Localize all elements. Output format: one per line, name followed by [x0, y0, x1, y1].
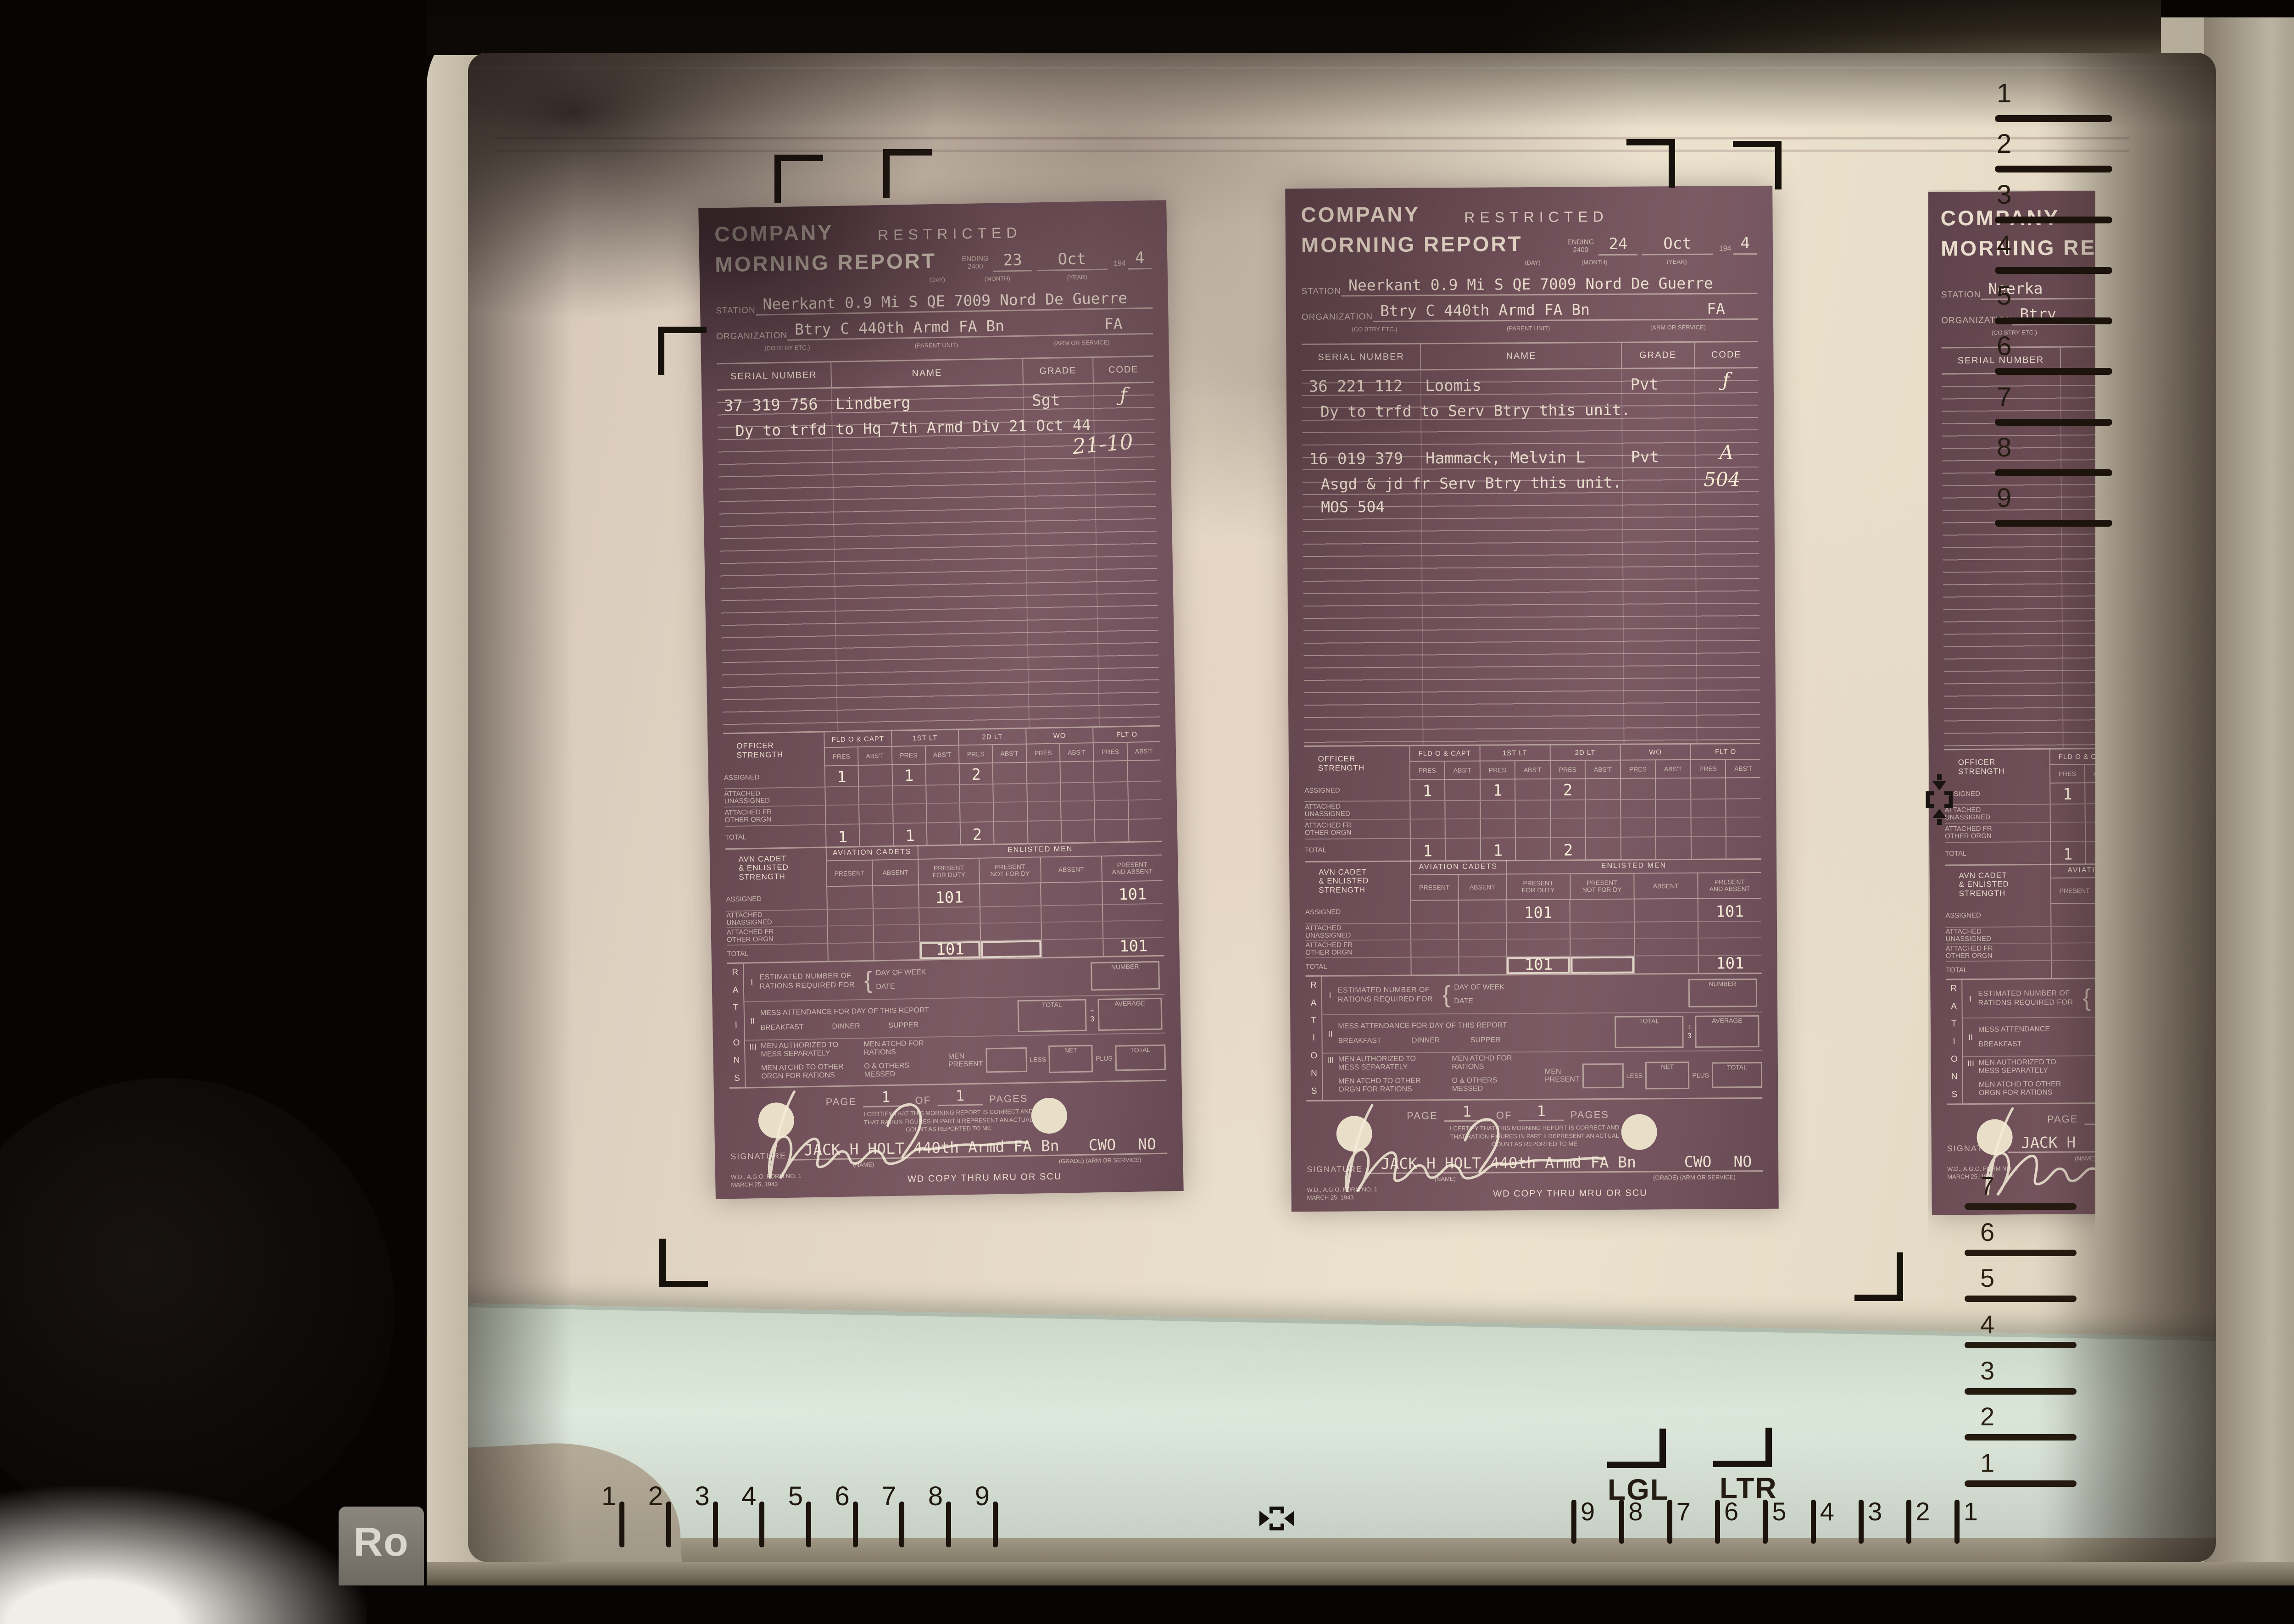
registration-bracket-icon — [659, 1239, 708, 1287]
ending-label: ENDING 2400 — [1567, 239, 1594, 256]
pres-abst-header: ABS'T — [857, 747, 891, 765]
officer-value: 2 — [1550, 779, 1585, 799]
pres-abst-header: ABS'T — [1585, 761, 1620, 778]
average-label: AVERAGE — [1712, 1017, 1743, 1024]
average-box: AVERAGE — [1097, 998, 1162, 1031]
officer-value: 1 — [825, 824, 859, 846]
rations-letter: T — [1311, 1016, 1316, 1026]
right-ruler-top: 123456789 — [1997, 80, 2041, 512]
foreground-silhouette — [0, 1078, 395, 1537]
entry-grade: Pvt — [1621, 375, 1694, 394]
entry-note-row: Dy to trfd to Serv Btry this unit. — [1302, 393, 1758, 421]
company-morning-report-form: COMPANY RESTRICTED MORNING REPORT ENDING… — [1285, 186, 1779, 1212]
pres-abst-header: ABS'T — [1514, 761, 1550, 779]
year-prefix: 194 — [1719, 245, 1732, 255]
net-box: NET — [1645, 1062, 1689, 1090]
restricted-stamp: RESTRICTED — [878, 224, 1022, 244]
officer-value: 1 — [1480, 838, 1515, 860]
scale-number: 9 — [1581, 1499, 1595, 1524]
ruler-number: 4 — [1980, 1312, 2021, 1337]
entry-code-handwritten: A — [1694, 441, 1758, 466]
org-sublabel: (CO BTRY ETC.) — [1352, 325, 1397, 333]
roman-numeral: II — [1963, 1032, 1978, 1042]
signature-grade: CWO — [1077, 1135, 1127, 1156]
entry-code-handwritten — [1094, 456, 1156, 481]
rations-part-1: I ESTIMATED NUMBER OF RATIONS REQUIRED F… — [744, 957, 1164, 1002]
row-label: TOTAL — [1946, 961, 2051, 979]
entry-code-handwritten: ƒ — [1694, 368, 1758, 394]
station-label: STATION — [1941, 290, 1981, 300]
rations-letter: A — [1951, 1001, 1957, 1012]
machine-top-shadow — [427, 0, 2161, 55]
breakfast-label: BREAKFAST — [760, 1023, 804, 1032]
center-film-horizontal-icon — [1258, 1506, 1295, 1531]
ruler-number: 2 — [1980, 1404, 2021, 1429]
doc-header: COMPANY RESTRICTED MORNING REPORT ENDING… — [714, 214, 1152, 291]
ending-day-value: 24 — [1598, 235, 1637, 256]
pres-abst-header: PRES — [958, 745, 992, 763]
officer-group-header: 1ST LT — [891, 730, 958, 746]
breakfast-label: BREAKFAST — [1978, 1040, 2021, 1049]
ruler-number: 8 — [1997, 434, 2041, 461]
col-header: ABSENT — [1633, 873, 1697, 899]
officer-value: 2 — [960, 822, 994, 844]
officer-assigned-row: ASSIGNED 1 1 2 — [1304, 778, 1760, 802]
pres-abst-header: PRES — [891, 746, 925, 764]
rations-part-2: II MESS ATTENDANCE FOR DAY OF THIS REPOR… — [744, 995, 1165, 1041]
rations-letter: O — [733, 1038, 740, 1048]
photo-of-microfilm-reader-screen: { "machine": { "brand_label": "Ro" }, "i… — [0, 0, 2294, 1585]
station-label: STATION — [716, 306, 756, 317]
roman-numeral: I — [1322, 990, 1338, 1000]
entry-note: Dy to trfd to Serv Btry this unit. — [1302, 401, 1630, 421]
ending-word: ENDING — [962, 255, 989, 263]
col-header: ABSENT — [1458, 874, 1506, 900]
right-ruler-bottom: 7654321 — [1980, 1173, 2021, 1476]
screen-bottom-lip — [468, 1538, 2216, 1562]
entry-serial: 16 019 379 — [1303, 450, 1417, 469]
scale-number: 4 — [741, 1483, 756, 1510]
year-sublabel: (YEAR) — [1067, 273, 1087, 281]
ltr-size-bracket-icon — [1713, 1428, 1772, 1467]
ending-month-value: Oct — [1036, 250, 1107, 272]
brace-glyph: { — [864, 967, 872, 994]
mess-separately-label: MEN AUTHORIZED TO MESS SEPARATELY — [761, 1040, 864, 1064]
morning-report-right: COMPANY RESTRICTED MORNING REPORT ENDING… — [1285, 186, 1779, 1212]
roster-column-headers: SERIAL NUMBER NAME GRADE CODE — [1302, 341, 1758, 371]
number-box: NUMBER — [1688, 979, 1757, 1007]
atchd-for-rations-label: MEN ATCHD FOR RATIONS — [863, 1039, 948, 1062]
total-box-2: TOTAL — [1115, 1045, 1166, 1071]
row-label: ASSIGNED — [1944, 784, 2049, 805]
organization-label: ORGANIZATION — [716, 331, 788, 342]
mess-attendance-label: MESS ATTENDANCE FOR DAY OF THIS REPORT — [1338, 1021, 1615, 1031]
row-label: TOTAL — [725, 825, 826, 848]
enlisted-assigned-row: ASSIGNED 101 101 — [1305, 899, 1761, 924]
pres-abst-header: ABS'T — [1444, 762, 1480, 779]
roster-entries-area: 36 221 112 Loomis Pvt ƒ Dy to trfd to Se… — [1302, 368, 1760, 745]
month-sublabel: (MONTH) — [984, 275, 1010, 282]
registration-bracket-icon — [658, 327, 707, 375]
year-prefix: 194 — [1114, 260, 1126, 270]
officer-group-header-row: FLD O & CAPT1ST LT2D LTWOFLT O — [1409, 744, 1760, 762]
ruler-number: 9 — [1997, 485, 2041, 512]
ruler-number: 1 — [1980, 1450, 2021, 1476]
pres-abst-header: ABS'T — [1059, 743, 1093, 761]
entry-serial: 37 319 756 — [717, 395, 827, 415]
entry-extra-row: MOS 504 — [1303, 490, 1759, 516]
scale-number: 4 — [1820, 1499, 1834, 1524]
year-sublabel: (YEAR) — [1667, 258, 1687, 265]
legal-size-label: LGL — [1608, 1473, 1669, 1507]
pres-abst-header: ABS'T — [1725, 760, 1760, 777]
organization-label: ORGANIZATION — [1302, 312, 1373, 323]
row-label: ATTACHED FR OTHER ORGN — [724, 806, 825, 826]
form-title-company: COMPANY — [1301, 201, 1420, 227]
col-header: PRESENT FOR DUTY — [1506, 874, 1570, 900]
ending-year-value: 4 — [1127, 249, 1152, 270]
row-label: ATTACHED FR OTHER ORGN — [727, 926, 828, 945]
dinner-label: DINNER — [832, 1022, 860, 1031]
ruler-number: 4 — [1997, 232, 2041, 259]
dinner-label: DINNER — [1412, 1036, 1440, 1045]
code-header: CODE — [1092, 357, 1154, 383]
scale-number: 6 — [835, 1483, 850, 1510]
brand-badge: Ro — [339, 1507, 424, 1585]
entry-grade: Sgt — [1023, 390, 1093, 410]
arm-of-service-value: FA — [1667, 300, 1758, 320]
serial-number-header: SERIAL NUMBER — [717, 362, 830, 389]
rations-letter: O — [1310, 1051, 1317, 1061]
ending-day-value: 23 — [993, 250, 1032, 272]
signature-arm: NO — [1127, 1135, 1167, 1155]
row-label: ATTACHED FR OTHER ORGN — [1945, 823, 2050, 842]
number-label: NUMBER — [1111, 963, 1139, 971]
date-label: DATE — [1454, 993, 1688, 1009]
signature-grade: CWO — [1673, 1152, 1723, 1172]
entry-extra — [720, 535, 737, 536]
roster-entry-row: 16 019 379 Hammack, Melvin L Pvt A — [1303, 441, 1759, 468]
enlisted-strength-label: AVN CADET & ENLISTED STRENGTH — [1945, 864, 2050, 905]
rations-letter: A — [732, 985, 738, 995]
rations-vertical-label: RATIONS — [1306, 977, 1323, 1100]
letter-size-label: LTR — [1720, 1471, 1777, 1505]
organization-value: Btry C 440th Armd FA Bn — [1373, 300, 1667, 322]
row-label: ASSIGNED — [1304, 780, 1409, 801]
total-box: TOTAL — [1018, 999, 1087, 1033]
handwritten-signature — [751, 1064, 1075, 1207]
number-box: NUMBER — [1091, 961, 1160, 991]
month-sublabel: (MONTH) — [1581, 258, 1607, 265]
pres-abst-header: PRES — [1025, 744, 1059, 762]
officer-group-header: WO — [1620, 745, 1690, 760]
scale-number: 5 — [788, 1483, 803, 1510]
row-label: TOTAL — [1305, 958, 1410, 975]
name-header: NAME — [830, 359, 1023, 387]
row-label: ATTACHED UNASSIGNED — [1305, 924, 1410, 940]
entry-grade: Pvt — [1621, 448, 1694, 467]
divide-by-three: ÷ 3 — [1687, 1023, 1691, 1040]
pres-abst-header: ABS'T — [1126, 742, 1160, 760]
officer-attached-fr-row: ATTACHED FR OTHER ORGN — [1305, 818, 1761, 840]
row-label: ATTACHED FR OTHER ORGN — [1946, 944, 2051, 961]
rations-vertical-label: RATIONS — [1946, 980, 1963, 1103]
ruler-number: 7 — [1997, 384, 2041, 411]
bottom-scale-left: 123456789 — [601, 1483, 990, 1510]
parent-unit-sublabel: (PARENT UNIT) — [1507, 324, 1550, 332]
rations-required-label: RATIONS REQUIRED FOR — [1338, 995, 1439, 1004]
rations-letter: I — [1953, 1037, 1955, 1047]
roman-numeral: II — [1322, 1029, 1338, 1039]
average-label: AVERAGE — [1114, 999, 1145, 1007]
officer-group-header: FLT O — [1093, 727, 1160, 743]
scale-number: 1 — [601, 1483, 616, 1510]
rations-part-2: II MESS ATTENDANCE FOR DAY OF THIS REPOR… — [1322, 1012, 1762, 1054]
rations-required-label: RATIONS REQUIRED FOR — [760, 980, 861, 991]
less-label: LESS — [1626, 1072, 1643, 1079]
name-header: NAME — [1420, 343, 1621, 369]
roman-numeral: I — [744, 977, 760, 987]
officer-value: 1 — [891, 765, 925, 785]
officer-group-header: WO — [1025, 728, 1093, 744]
entry-name: Hammack, Melvin L — [1416, 448, 1622, 468]
enlisted-strength-table: AVN CADET & ENLISTED STRENGTH AVIATION C… — [725, 841, 1164, 964]
grade-header: GRADE — [1022, 358, 1092, 384]
row-label: ASSIGNED — [726, 887, 827, 911]
rations-letter: A — [1311, 998, 1317, 1008]
rations-letter: R — [1950, 984, 1957, 994]
officer-group-header: FLT O — [1690, 744, 1760, 759]
scale-number: 3 — [695, 1483, 709, 1510]
arm-of-service-value: FA — [1066, 314, 1153, 336]
entry-note: Asgd & jd fr Serv Btry this unit. — [1303, 473, 1622, 493]
pres-abst-header: PRES — [1480, 761, 1515, 779]
row-label: ASSIGNED — [724, 766, 825, 788]
officer-strength-label: OFFICER STRENGTH — [723, 732, 824, 768]
ruler-number: 6 — [1980, 1219, 2021, 1245]
doc-header: COMPANY RESTRICTED MORNING REPORT ENDING… — [1301, 200, 1757, 271]
form-title-morning-report: MORNING REPORT — [1301, 231, 1523, 257]
day-of-week-label: DAY OF WEEK — [1454, 979, 1688, 995]
enlisted-men-header: ENLISTED MEN — [1506, 858, 1761, 873]
day-sublabel: (DAY) — [929, 276, 945, 283]
pres-abst-header: PRES — [1690, 760, 1726, 777]
entry-code-handwritten: ƒ — [1093, 383, 1154, 409]
ending-hour: 2400 — [968, 263, 983, 271]
officer-value: 1 — [1480, 779, 1515, 800]
enlisted-value: 101 — [919, 941, 980, 959]
registration-bracket-icon — [1854, 1252, 1903, 1301]
roman-numeral: I — [1962, 994, 1978, 1003]
scale-number: 2 — [1915, 1499, 1930, 1524]
brace-glyph: { — [1442, 981, 1451, 1008]
row-label: ATTACHED UNASSIGNED — [1945, 805, 2050, 823]
officer-value: 2 — [1550, 838, 1586, 859]
rations-letter: S — [734, 1073, 740, 1084]
row-label: TOTAL — [1945, 842, 2050, 865]
officer-attached-row: ATTACHED UNASSIGNED — [1304, 799, 1760, 820]
rations-letter: O — [1951, 1054, 1958, 1064]
registration-bracket-icon — [883, 149, 932, 198]
breakfast-label: BREAKFAST — [1338, 1037, 1381, 1046]
rations-part-1: I ESTIMATED NUMBER OF RATIONS REQUIRED F… — [1322, 974, 1762, 1015]
code-header: CODE — [1694, 342, 1758, 367]
enlisted-strength-label: AVN CADET & ENLISTED STRENGTH — [1305, 861, 1410, 901]
entry-extra-row — [1302, 418, 1758, 444]
row-label: ASSIGNED — [1945, 904, 2050, 927]
scale-number: 2 — [648, 1483, 663, 1510]
entry-note-code: 504 — [1704, 468, 1740, 490]
enlisted-value: 101 — [1102, 938, 1164, 956]
pres-abst-header: PRES — [1093, 743, 1127, 761]
col-header: PRESENT AND ABSENT — [1697, 873, 1761, 898]
pres-abst-header: ABS'T — [925, 745, 959, 763]
ending-label: ENDING 2400 — [962, 255, 989, 273]
estimated-label: ESTIMATED NUMBER OF — [1338, 985, 1439, 995]
row-label: ATTACHED FR OTHER ORGN — [1305, 940, 1410, 957]
scale-number: 8 — [928, 1483, 943, 1510]
enlisted-subheader-row: PRESENT ABSENT PRESENT FOR DUTY PRESENT … — [1410, 873, 1761, 901]
plus-label: PLUS — [1096, 1055, 1113, 1062]
rations-letter: N — [734, 1056, 740, 1066]
plus-label: PLUS — [1692, 1072, 1709, 1079]
doc-footer: PAGE 1 OF 1 PAGES I CERTIFY THAT THIS MO… — [729, 1081, 1168, 1185]
ending-year-value: 4 — [1733, 234, 1757, 255]
ending-month-value: Oct — [1642, 234, 1713, 256]
supper-label: SUPPER — [888, 1021, 919, 1030]
rations-letter: N — [1311, 1068, 1317, 1079]
col-header: PRESENT — [826, 861, 872, 886]
ruler-number: 5 — [1980, 1265, 2021, 1291]
row-label: TOTAL — [1305, 839, 1410, 861]
row-label: ATTACHED UNASSIGNED — [1304, 801, 1409, 819]
scale-number: 7 — [881, 1483, 896, 1510]
officer-group-header: 2D LT — [1549, 745, 1620, 760]
enlisted-value: 101 — [918, 884, 980, 907]
rations-letter: R — [732, 968, 738, 978]
divide-by-three: ÷ 3 — [1090, 1006, 1095, 1024]
entry-serial: 36 221 112 — [1302, 377, 1416, 396]
rations-letter: S — [1952, 1090, 1958, 1100]
screen-right-shadow — [2037, 53, 2216, 1562]
average-box: AVERAGE — [1695, 1015, 1759, 1048]
row-label: ATTACHED FR OTHER ORGN — [1305, 820, 1410, 839]
enlisted-group-header-row: AVIATION CADETS ENLISTED MEN — [1410, 858, 1761, 875]
officer-group-header: FLD O & CAPT — [1409, 746, 1479, 761]
col-header: PRESENT NOT FOR DY — [979, 857, 1040, 883]
rations-letter: I — [735, 1020, 737, 1030]
rations-letter: T — [1951, 1019, 1957, 1029]
entry-extra: MOS 504 — [1303, 498, 1385, 516]
officer-strength-table: OFFICER STRENGTH FLD O & CAPT1ST LT2D LT… — [1304, 743, 1761, 861]
center-film-vertical-icon — [1921, 774, 1957, 825]
aviation-cadets-header: AVIATION CADETS — [1410, 860, 1506, 874]
officer-value: 1 — [824, 766, 858, 786]
col-header: PRESENT AND ABSENT — [1101, 856, 1163, 881]
ruler-number: 2 — [1997, 131, 2041, 157]
row-label: ATTACHED UNASSIGNED — [726, 910, 827, 927]
scale-number: 3 — [1868, 1499, 1882, 1524]
scale-number: 9 — [975, 1483, 990, 1510]
officer-group-header: 2D LT — [958, 729, 1025, 745]
total-box-2: TOTAL — [1712, 1062, 1762, 1088]
col-header: ABSENT — [872, 860, 918, 885]
pres-abst-header: ABS'T — [992, 745, 1026, 762]
org-sublabel: (CO BTRY ETC.) — [764, 344, 810, 351]
film-scratch-line — [496, 137, 2129, 139]
officer-strength-label: OFFICER STRENGTH — [1944, 750, 2049, 784]
entry-name: Loomis — [1416, 376, 1621, 395]
mess-separately-label: MEN AUTHORIZED TO MESS SEPARATELY — [1338, 1055, 1452, 1078]
officer-group-header: FLD O & CAPT — [824, 731, 891, 747]
less-label: LESS — [1030, 1056, 1046, 1063]
ruler-number: 5 — [1997, 283, 2041, 309]
aviation-cadets-header: AVIATION CADETS — [826, 845, 918, 860]
ruler-number: 3 — [1980, 1358, 2021, 1384]
day-sublabel: (DAY) — [1525, 259, 1541, 266]
officer-strength-label: OFFICER STRENGTH — [1304, 746, 1409, 781]
pres-abst-header: ABS'T — [1655, 760, 1690, 778]
row-label: TOTAL — [727, 944, 828, 962]
registration-bracket-icon — [1733, 141, 1782, 189]
col-header: PRESENT FOR DUTY — [918, 859, 979, 884]
pres-abst-header: PRES — [1550, 761, 1585, 778]
officer-group-header: 1ST LT — [1479, 745, 1549, 761]
supper-label: SUPPER — [1470, 1036, 1501, 1044]
rations-letter: R — [1310, 980, 1317, 990]
morning-report-left: COMPANY RESTRICTED MORNING REPORT ENDING… — [698, 200, 1184, 1199]
ruler-number: 6 — [1997, 333, 2041, 360]
desk-light-glow — [0, 1486, 367, 1624]
scale-number: 7 — [1676, 1499, 1691, 1524]
roster-entries-area: 37 319 756 Lindberg Sgt ƒ Dy to trfd to … — [717, 383, 1160, 733]
parent-unit-sublabel: (PARENT UNIT) — [915, 341, 958, 349]
col-header: PRESENT — [1410, 875, 1458, 900]
rations-vertical-label: RATIONS — [727, 964, 746, 1088]
enlisted-value: 101 — [1697, 899, 1761, 921]
ruler-number: 3 — [1997, 182, 2041, 208]
enlisted-strength-table: AVN CADET & ENLISTED STRENGTH AVIATION C… — [1305, 858, 1762, 977]
row-label: ASSIGNED — [1305, 901, 1410, 923]
enlisted-strength-label: AVN CADET & ENLISTED STRENGTH — [725, 846, 826, 889]
restricted-stamp: RESTRICTED — [1464, 208, 1609, 226]
total-label: TOTAL — [1639, 1017, 1659, 1024]
enlisted-value: 101 — [1506, 900, 1570, 923]
glass-edge-highlight — [468, 67, 2216, 69]
enlisted-total-row: TOTAL 101 101 — [1305, 956, 1761, 977]
roster-entry-row: 36 221 112 Loomis Pvt ƒ — [1302, 368, 1758, 396]
station-value: Neerkant 0.9 Mi S QE 7009 Nord De Guerre — [1341, 274, 1758, 297]
officer-value: 1 — [1409, 839, 1445, 860]
ruler-number: 7 — [1980, 1173, 2021, 1199]
officer-subheader-row: PRESABS'TPRESABS'TPRESABS'TPRESABS'TPRES… — [1409, 760, 1760, 780]
rations-letter: S — [1311, 1086, 1317, 1096]
row-label: ATTACHED UNASSIGNED — [724, 787, 825, 806]
rations-letter: I — [1313, 1033, 1315, 1043]
company-morning-report-form: COMPANY RESTRICTED MORNING REPORT ENDING… — [698, 200, 1184, 1199]
enlisted-attached-row: ATTACHED UNASSIGNED — [1305, 922, 1761, 941]
enlisted-value: 101 — [1698, 956, 1761, 973]
arm-sublabel: (ARM OR SERVICE) — [1650, 323, 1706, 331]
serial-number-header: SERIAL NUMBER — [1302, 344, 1420, 370]
station-label: STATION — [1302, 287, 1342, 297]
handwritten-signature — [1329, 1081, 1651, 1220]
brand-label: Ro — [353, 1518, 409, 1565]
rations-letter: T — [733, 1003, 739, 1013]
officer-strength-table: OFFICER STRENGTH FLD O & CAPT1ST LT2D LT… — [723, 725, 1162, 849]
viewer-screen: COMPANY RESTRICTED MORNING REPORT ENDING… — [468, 53, 2216, 1562]
number-label: NUMBER — [1709, 980, 1737, 987]
